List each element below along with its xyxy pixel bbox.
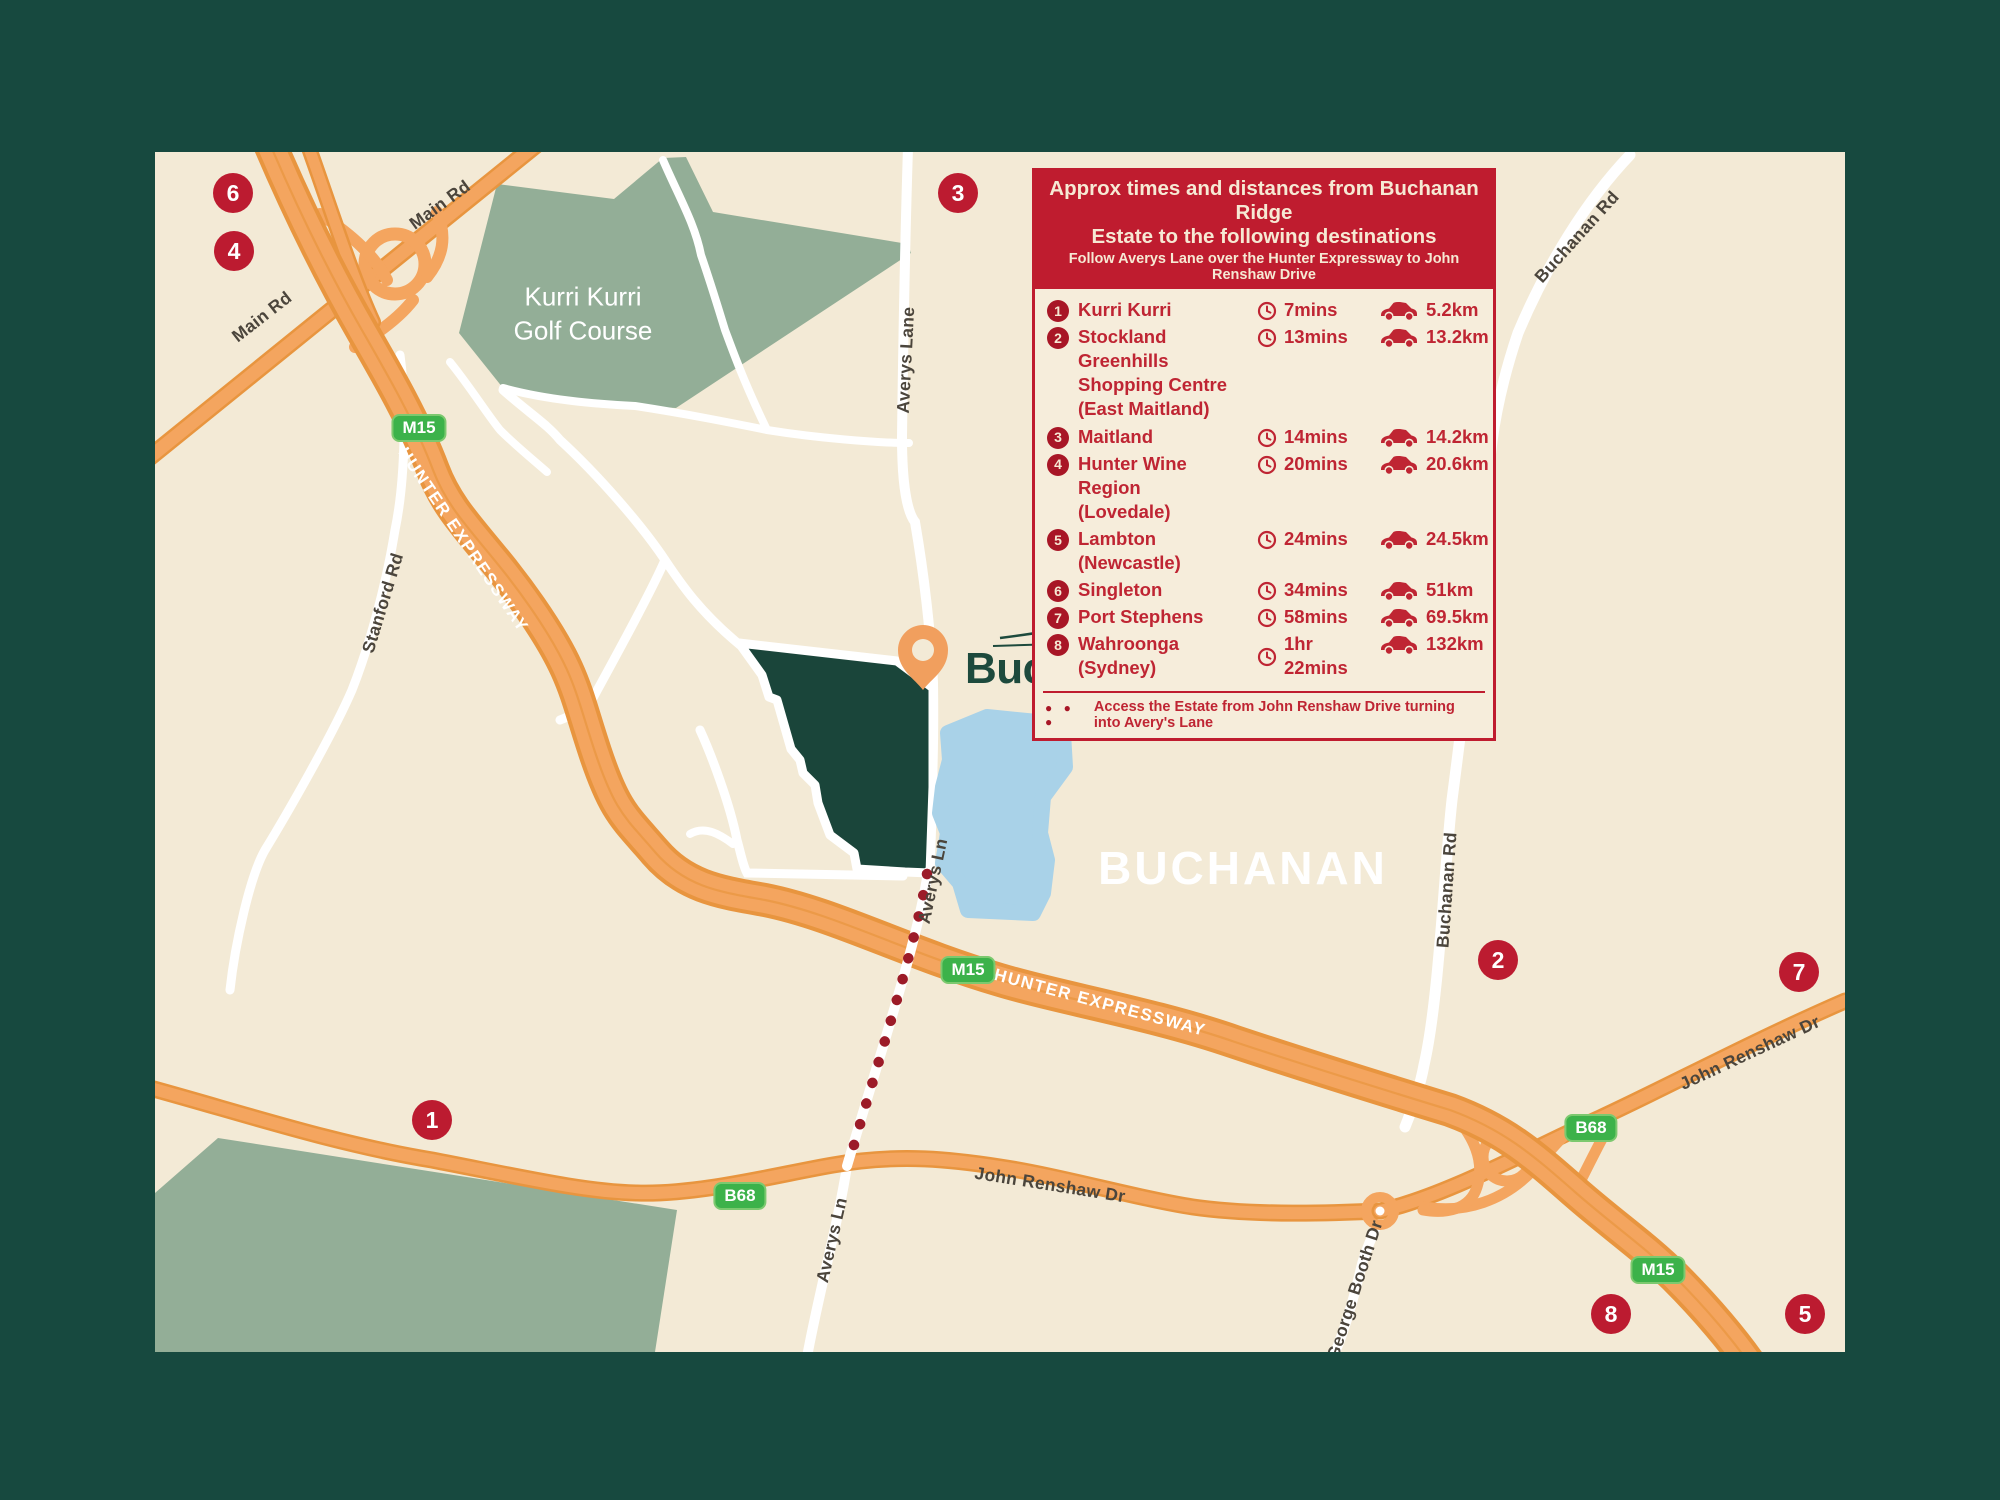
travel-time: 1hr 22mins bbox=[1284, 632, 1379, 680]
legend-row: 8 Wahroonga (Sydney) 1hr 22mins 132km bbox=[1047, 632, 1483, 680]
legend-row: 2 Stockland Greenhills Shopping Centre (… bbox=[1047, 325, 1483, 421]
legend-panel: Approx times and distances from Buchanan… bbox=[1032, 168, 1496, 741]
legend-header: Approx times and distances from Buchanan… bbox=[1035, 171, 1493, 289]
clock-icon bbox=[1257, 647, 1277, 667]
clock-icon bbox=[1257, 608, 1277, 628]
legend-footer-note: ● ● ● Access the Estate from John Rensha… bbox=[1043, 691, 1485, 738]
destination-marker-2: 2 bbox=[1478, 940, 1518, 980]
car-icon bbox=[1379, 634, 1419, 656]
car-icon bbox=[1379, 580, 1419, 602]
route-shield-b68-west: B68 bbox=[713, 1182, 766, 1210]
destination-marker-5: 5 bbox=[1785, 1294, 1825, 1334]
destination-marker-8: 8 bbox=[1591, 1294, 1631, 1334]
legend-subtitle: Follow Averys Lane over the Hunter Expre… bbox=[1041, 251, 1487, 283]
travel-distance: 14.2km bbox=[1426, 425, 1489, 449]
travel-distance: 51km bbox=[1426, 578, 1473, 602]
clock-icon bbox=[1257, 301, 1277, 321]
row-number-badge: 1 bbox=[1047, 300, 1069, 322]
travel-time: 13mins bbox=[1284, 325, 1348, 349]
dotted-route-key-icon: ● ● ● bbox=[1045, 701, 1084, 729]
car-icon bbox=[1379, 327, 1419, 349]
route-shield-m15-south: M15 bbox=[1630, 1256, 1685, 1284]
travel-distance: 5.2km bbox=[1426, 298, 1478, 322]
clock-icon bbox=[1257, 428, 1277, 448]
destination-name: Kurri Kurri bbox=[1078, 298, 1257, 322]
region-label-buchanan: BUCHANAN bbox=[1098, 841, 1388, 895]
legend-row: 3 Maitland 14mins 14.2km bbox=[1047, 425, 1483, 449]
destination-marker-3: 3 bbox=[938, 173, 978, 213]
destination-marker-7: 7 bbox=[1779, 952, 1819, 992]
travel-distance: 20.6km bbox=[1426, 452, 1489, 476]
golf-course-label: Kurri Kurri Golf Course bbox=[514, 280, 653, 349]
clock-icon bbox=[1257, 455, 1277, 475]
car-icon bbox=[1379, 529, 1419, 551]
route-shield-m15-mid: M15 bbox=[940, 956, 995, 984]
destination-name: Stockland Greenhills Shopping Centre (Ea… bbox=[1078, 325, 1257, 421]
row-number-badge: 8 bbox=[1047, 634, 1069, 656]
map-canvas: Main Rd Main Rd Stanford Rd Averys Lane … bbox=[155, 152, 1845, 1352]
travel-distance: 69.5km bbox=[1426, 605, 1489, 629]
travel-time: 20mins bbox=[1284, 452, 1348, 476]
row-number-badge: 7 bbox=[1047, 607, 1069, 629]
row-number-badge: 5 bbox=[1047, 529, 1069, 551]
clock-icon bbox=[1257, 581, 1277, 601]
row-number-badge: 2 bbox=[1047, 327, 1069, 349]
destination-name: Wahroonga (Sydney) bbox=[1078, 632, 1257, 680]
travel-time: 14mins bbox=[1284, 425, 1348, 449]
route-shield-m15-north: M15 bbox=[391, 414, 446, 442]
destination-name: Hunter Wine Region (Lovedale) bbox=[1078, 452, 1257, 524]
travel-time: 24mins bbox=[1284, 527, 1348, 551]
destination-name: Lambton (Newcastle) bbox=[1078, 527, 1257, 575]
travel-time: 58mins bbox=[1284, 605, 1348, 629]
travel-time: 7mins bbox=[1284, 298, 1337, 322]
row-number-badge: 3 bbox=[1047, 427, 1069, 449]
destination-marker-1: 1 bbox=[412, 1100, 452, 1140]
lake bbox=[940, 717, 1065, 913]
travel-time: 34mins bbox=[1284, 578, 1348, 602]
legend-row: 5 Lambton (Newcastle) 24mins 24.5km bbox=[1047, 527, 1483, 575]
car-icon bbox=[1379, 454, 1419, 476]
estate-parcel bbox=[739, 643, 933, 873]
page: { "colors":{ "frame-green":"#17493f","ma… bbox=[0, 0, 2000, 1500]
destination-name: Maitland bbox=[1078, 425, 1257, 449]
footer-note-text: Access the Estate from John Renshaw Driv… bbox=[1094, 699, 1483, 731]
destination-name: Port Stephens bbox=[1078, 605, 1257, 629]
travel-distance: 13.2km bbox=[1426, 325, 1489, 349]
row-number-badge: 4 bbox=[1047, 454, 1069, 476]
legend-row: 4 Hunter Wine Region (Lovedale) 20mins 2… bbox=[1047, 452, 1483, 524]
car-icon bbox=[1379, 607, 1419, 629]
clock-icon bbox=[1257, 530, 1277, 550]
legend-rows: 1 Kurri Kurri 7mins 5.2km 2 Stockland Gr… bbox=[1035, 289, 1493, 687]
legend-title: Approx times and distances from Buchanan… bbox=[1041, 177, 1487, 248]
legend-row: 7 Port Stephens 58mins 69.5km bbox=[1047, 605, 1483, 629]
destination-marker-6: 6 bbox=[213, 173, 253, 213]
car-icon bbox=[1379, 300, 1419, 322]
row-number-badge: 6 bbox=[1047, 580, 1069, 602]
green-area-southwest bbox=[155, 1138, 677, 1352]
legend-row: 6 Singleton 34mins 51km bbox=[1047, 578, 1483, 602]
legend-row: 1 Kurri Kurri 7mins 5.2km bbox=[1047, 298, 1483, 322]
route-shield-b68-east: B68 bbox=[1564, 1114, 1617, 1142]
destination-name: Singleton bbox=[1078, 578, 1257, 602]
clock-icon bbox=[1257, 328, 1277, 348]
destination-marker-4: 4 bbox=[214, 231, 254, 271]
travel-distance: 132km bbox=[1426, 632, 1484, 656]
car-icon bbox=[1379, 427, 1419, 449]
travel-distance: 24.5km bbox=[1426, 527, 1489, 551]
